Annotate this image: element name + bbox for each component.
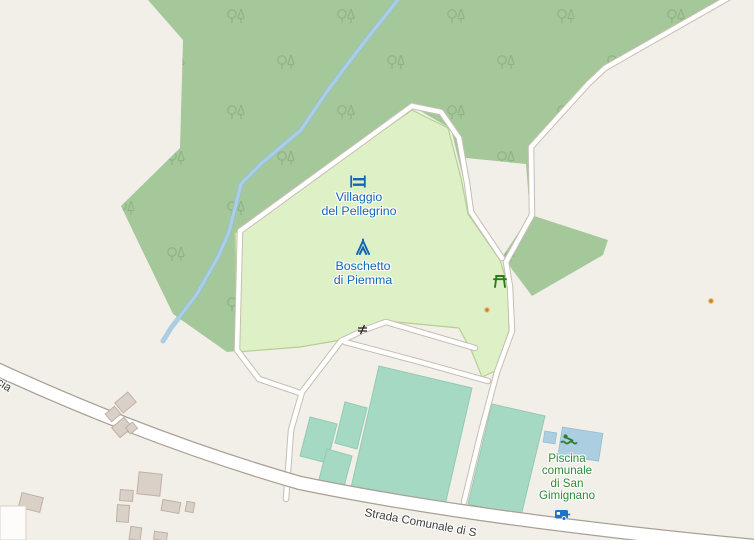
label-boschetto-di-piemma: Boschetto di Piemma xyxy=(334,259,393,287)
label-villaggio-del-pellegrino: Villaggio del Pellegrino xyxy=(321,190,396,218)
map-canvas[interactable]: Villaggio del Pellegrino Boschetto di Pi… xyxy=(0,0,754,540)
label-piscina-comunale: Piscina comunale di San Gimignano xyxy=(539,453,595,503)
poi-dot[interactable] xyxy=(485,308,490,313)
poi-dot[interactable] xyxy=(709,299,714,304)
